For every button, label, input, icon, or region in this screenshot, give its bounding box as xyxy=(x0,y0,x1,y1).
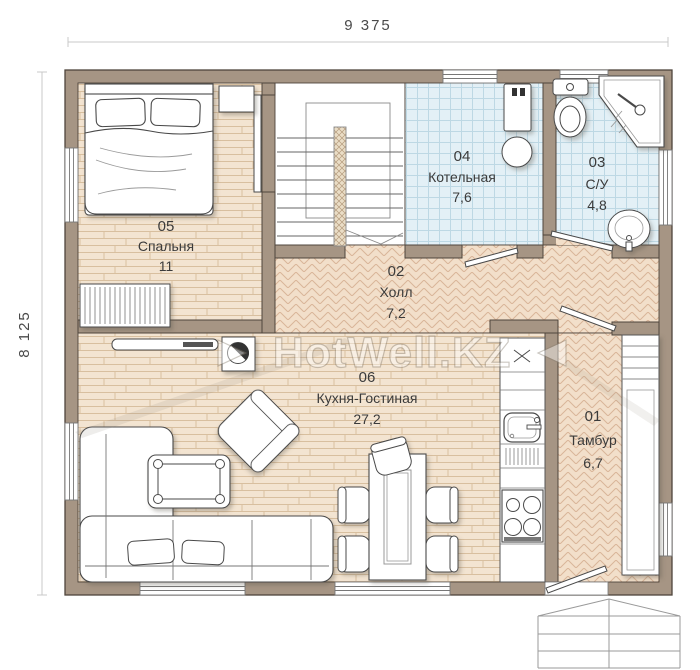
coffee-table xyxy=(148,455,230,508)
shower-head-icon xyxy=(635,105,645,115)
nightstand xyxy=(219,86,254,112)
boiler-tank xyxy=(502,137,532,167)
wall-bedroom-right-top xyxy=(262,83,275,95)
wall-bedroom-right xyxy=(262,192,275,333)
wall-vestibule-top xyxy=(612,322,659,335)
wall-boiler-bath xyxy=(543,83,556,235)
toilet xyxy=(553,79,588,137)
dimension-left: 8 125 xyxy=(16,72,47,595)
wall-under-stairs xyxy=(275,245,345,258)
svg-text:02: 02 xyxy=(388,263,405,280)
svg-text:Тамбур: Тамбур xyxy=(569,432,617,448)
wall-boiler-bottom-left xyxy=(405,245,462,258)
wall-boiler-bottom-right xyxy=(517,245,543,258)
window-bottom-dining xyxy=(335,582,450,595)
svg-text:11: 11 xyxy=(159,258,174,274)
dimension-width-label: 9 375 xyxy=(344,17,392,34)
floor-plan-svg: 9 375 8 125 xyxy=(0,0,700,670)
kitchen-faucet-icon xyxy=(527,425,541,429)
window-left-living xyxy=(65,423,78,500)
svg-text:05: 05 xyxy=(158,218,175,235)
svg-text:Котельная: Котельная xyxy=(428,169,496,185)
kitchen-sink xyxy=(504,413,541,442)
wardrobe xyxy=(622,335,659,575)
bedroom-door-leaf xyxy=(254,95,261,192)
svg-text:С/У: С/У xyxy=(586,176,609,192)
tv xyxy=(112,339,218,350)
svg-text:6,7: 6,7 xyxy=(583,455,603,471)
wall-kitchen-vestibule xyxy=(545,333,558,582)
svg-text:7,6: 7,6 xyxy=(452,189,472,205)
svg-text:Спальня: Спальня xyxy=(138,238,194,254)
svg-text:Холл: Холл xyxy=(380,284,413,300)
sofa-pillow xyxy=(127,538,175,565)
sofa-pillow xyxy=(181,540,224,565)
window-right-bath xyxy=(659,150,672,225)
boiler-unit xyxy=(502,84,532,167)
window-left-bedroom xyxy=(65,148,78,222)
svg-text:04: 04 xyxy=(454,148,471,165)
dimension-height-label: 8 125 xyxy=(16,310,33,358)
bedroom-dresser xyxy=(80,284,170,327)
svg-text:4,8: 4,8 xyxy=(587,197,607,213)
svg-text:01: 01 xyxy=(585,408,602,425)
svg-text:27,2: 27,2 xyxy=(353,411,380,427)
entry-steps xyxy=(538,599,680,668)
floor-plan-page: 9 375 8 125 xyxy=(0,0,700,670)
room-label-bathroom: 03 С/У 4,8 xyxy=(586,154,609,213)
svg-text:7,2: 7,2 xyxy=(386,305,406,321)
svg-text:Кухня-Гостиная: Кухня-Гостиная xyxy=(317,390,418,406)
stair-core-wall xyxy=(334,127,346,246)
window-right-vestibule xyxy=(659,503,672,556)
window-top-boiler xyxy=(443,70,497,83)
window-bottom-living xyxy=(140,582,245,595)
bed xyxy=(85,84,213,215)
dimension-top: 9 375 xyxy=(68,17,668,47)
watermark-text: HotWell.KZ xyxy=(273,329,512,377)
stove xyxy=(502,490,543,542)
svg-text:03: 03 xyxy=(589,154,606,171)
